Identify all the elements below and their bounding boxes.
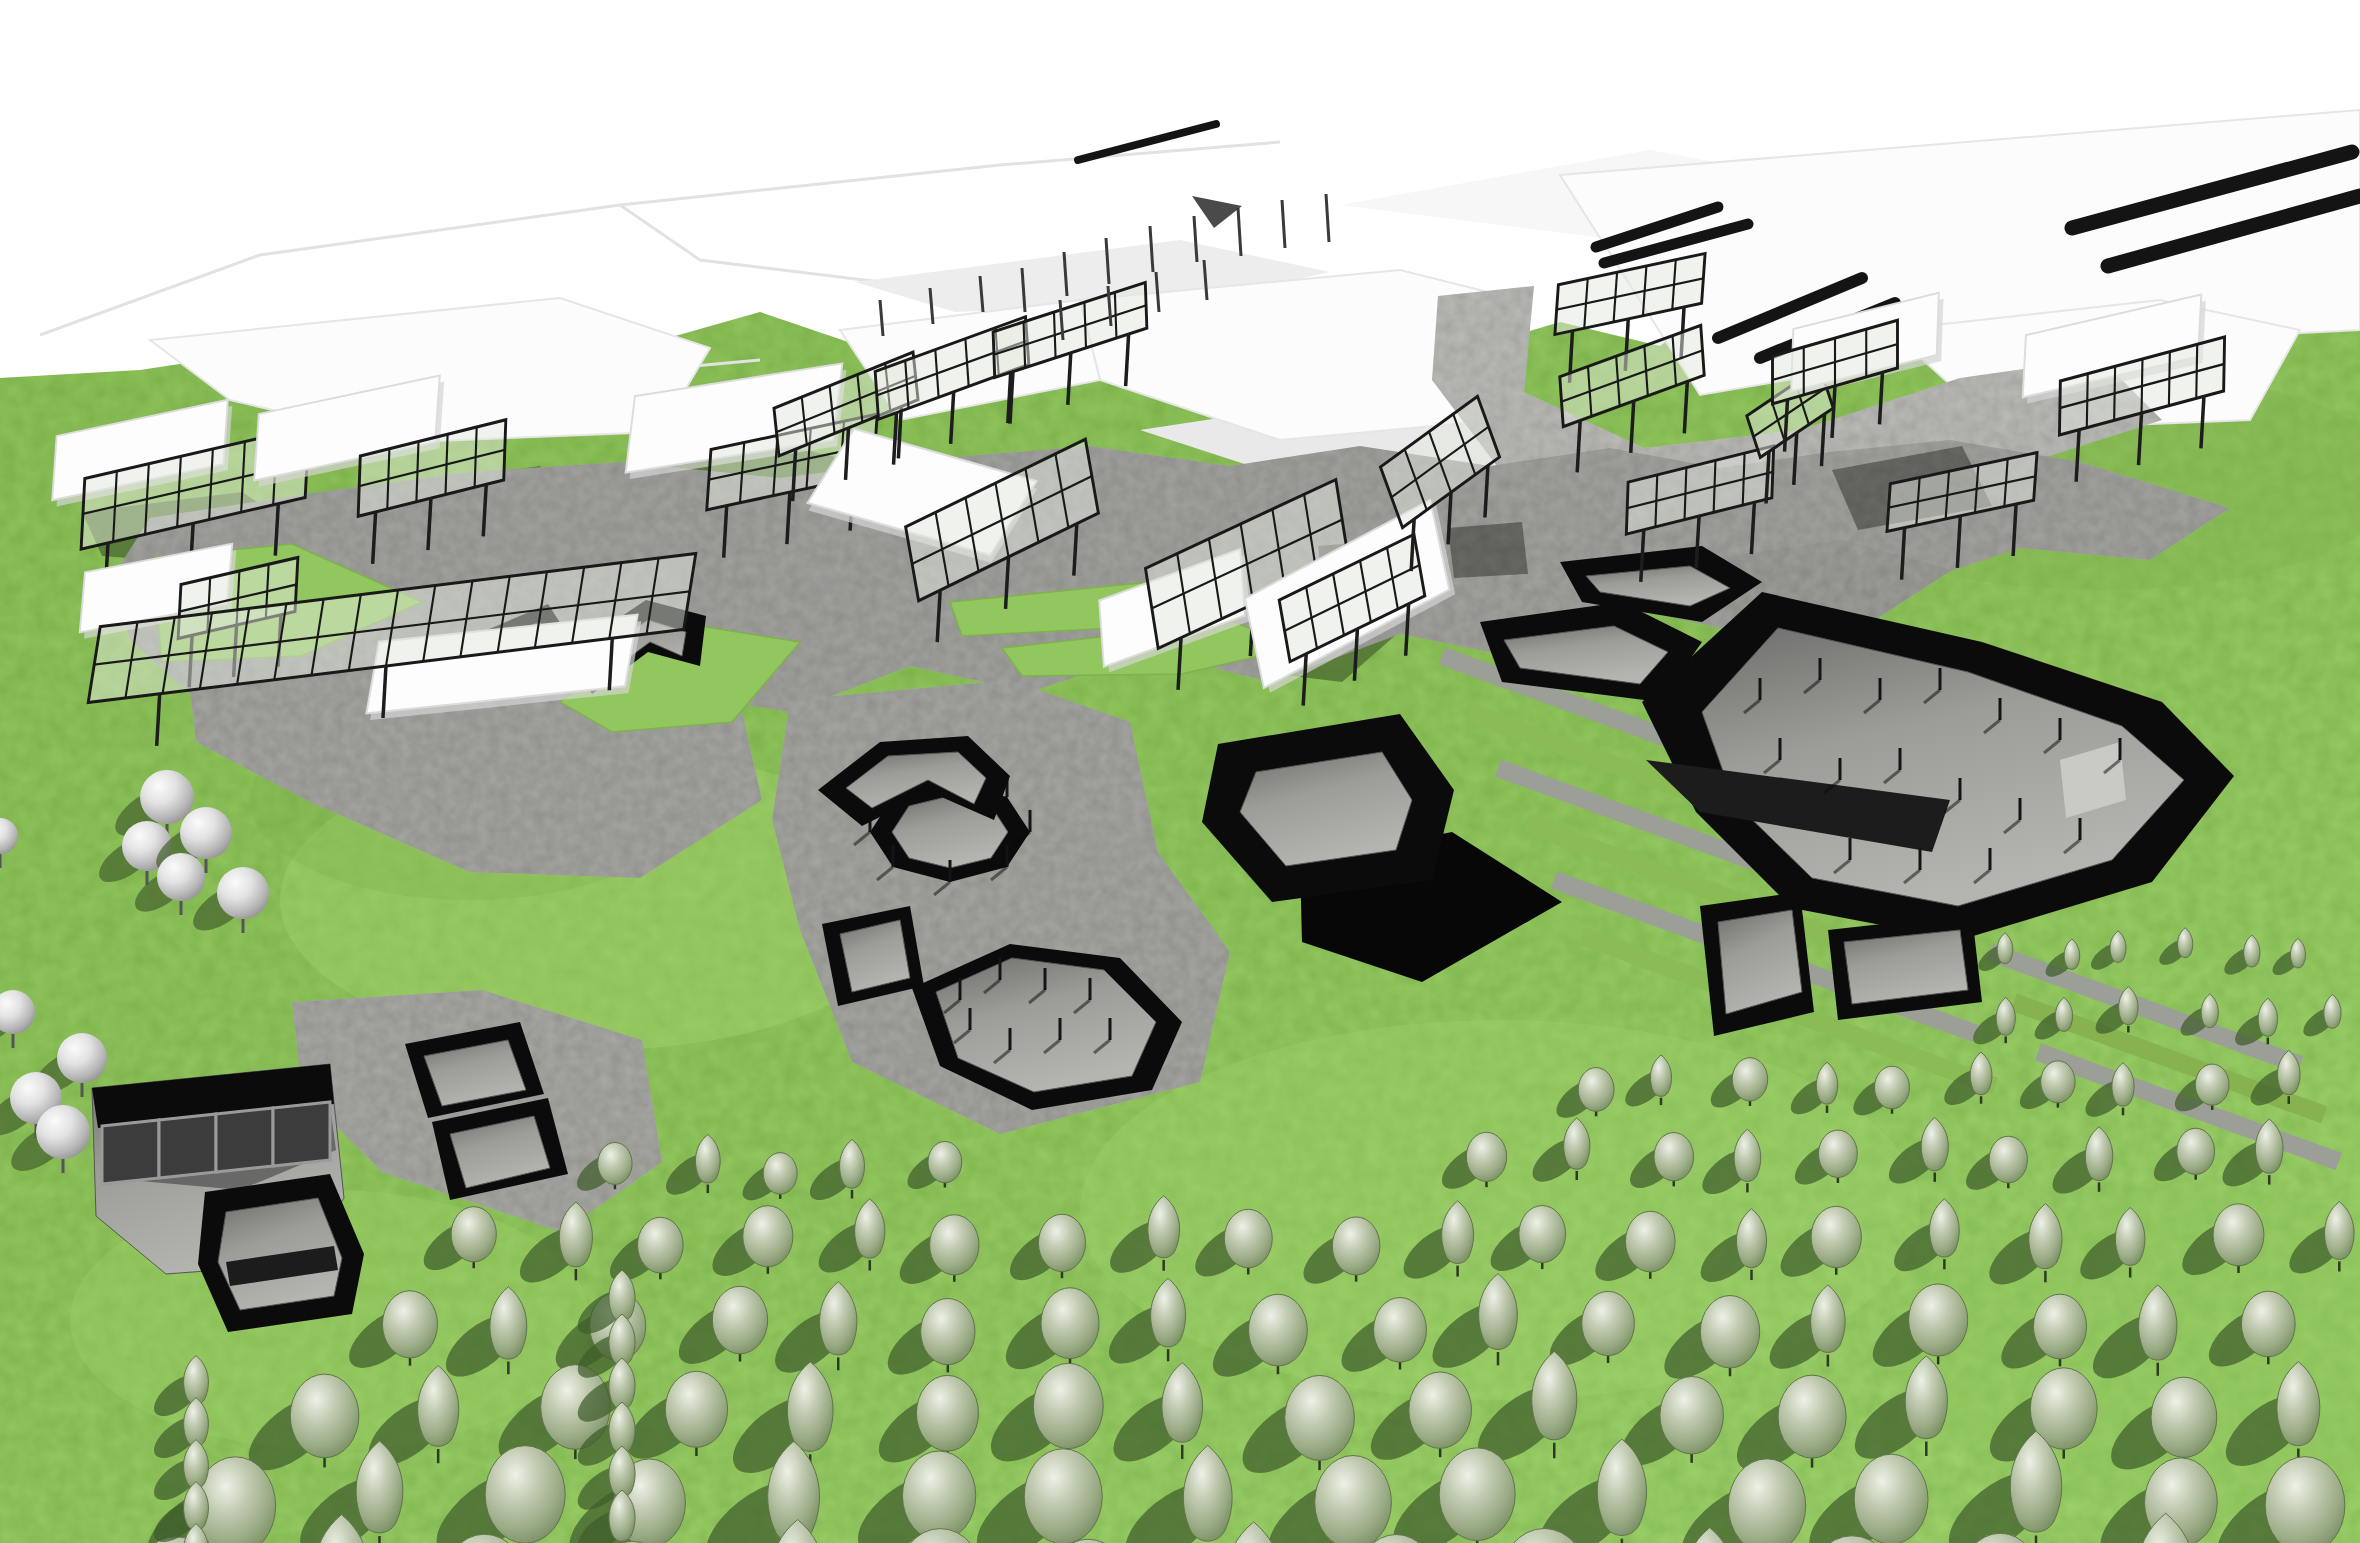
orchard-tree-round (1654, 1133, 1694, 1181)
site-rendering (0, 0, 2360, 1543)
orchard-tree-round (1582, 1291, 1635, 1355)
orchard-tree-round (1519, 1206, 1566, 1263)
orchard-tree-round (665, 1371, 727, 1447)
orchard-tree-round (743, 1206, 793, 1267)
orchard-tree-round (1818, 1130, 1857, 1177)
orchard-tree-round (930, 1215, 979, 1275)
orchard-tree-round (382, 1291, 437, 1358)
orchard-tree-round (2195, 1064, 2229, 1105)
orchard-tree-round (1409, 1372, 1472, 1448)
orchard-tree-round (1989, 1136, 2027, 1183)
orchard-tree-round (1224, 1209, 1272, 1268)
orchard-tree-round (2241, 1291, 2295, 1357)
orchard-tree-round (1249, 1294, 1308, 1366)
orchard-tree-round (1778, 1375, 1846, 1458)
orchard-tree-round (1038, 1214, 1085, 1271)
glass-pane (159, 1114, 216, 1178)
orchard-tree-round (928, 1141, 962, 1182)
sphere-tree-crown (180, 807, 232, 859)
orchard-tree-round (2151, 1377, 2217, 1457)
orchard-tree-round (451, 1207, 496, 1262)
orchard-tree-round (1439, 1448, 1515, 1541)
sphere-tree-crown (57, 1033, 107, 1083)
orchard-tree-round (2033, 1294, 2086, 1359)
sphere-tree-crown (36, 1105, 90, 1159)
orchard-tree-round (902, 1451, 975, 1540)
orchard-tree-round (1660, 1376, 1724, 1453)
orchard-tree-round (921, 1298, 975, 1364)
orchard-tree-round (2041, 1061, 2075, 1103)
orchard-tree-round (763, 1153, 797, 1194)
orchard-tree-round (1285, 1375, 1355, 1460)
orchard-tree-round (1315, 1455, 1392, 1543)
glass-pane (102, 1120, 159, 1184)
orchard-tree-round (1578, 1068, 1614, 1112)
orchard-tree-round (1466, 1132, 1506, 1181)
orchard-tree-round (1732, 1058, 1767, 1101)
glass-pane (273, 1102, 330, 1166)
orchard-tree-round (1041, 1288, 1099, 1359)
orchard-tree-round (1024, 1449, 1102, 1543)
orchard-tree-round (290, 1374, 359, 1458)
orchard-tree-round (712, 1286, 767, 1354)
orchard-tree-round (1374, 1298, 1427, 1363)
orchard-tree-round (1854, 1454, 1928, 1543)
glass-pane (216, 1108, 273, 1172)
dark-paving-patch (1448, 522, 1528, 578)
sphere-tree-crown (140, 770, 194, 824)
orchard-tree-round (598, 1142, 632, 1184)
courtyard-building-small-rect-b (1828, 914, 1982, 1020)
orchard-tree-round (1811, 1206, 1861, 1267)
orchard-tree-round (1033, 1363, 1103, 1448)
orchard-tree-round (485, 1446, 565, 1543)
courtyard-building-small-rect-a (1700, 892, 1814, 1036)
orchard-tree-round (1875, 1066, 1910, 1109)
orchard-tree-round (916, 1375, 978, 1451)
orchard-tree-round (1909, 1284, 1968, 1356)
sphere-tree-crown (217, 867, 269, 919)
orchard-tree-round (2177, 1128, 2215, 1174)
orchard-tree-round (2213, 1204, 2264, 1266)
orchard-tree-round (638, 1217, 684, 1273)
orchard-tree-round (1700, 1296, 1759, 1368)
render-canvas (0, 0, 2360, 1543)
courtyard-building-stepped-box (198, 1174, 364, 1332)
sphere-tree-crown (157, 853, 205, 901)
orchard-tree-round (1625, 1211, 1675, 1272)
orchard-tree-round (1332, 1217, 1380, 1275)
